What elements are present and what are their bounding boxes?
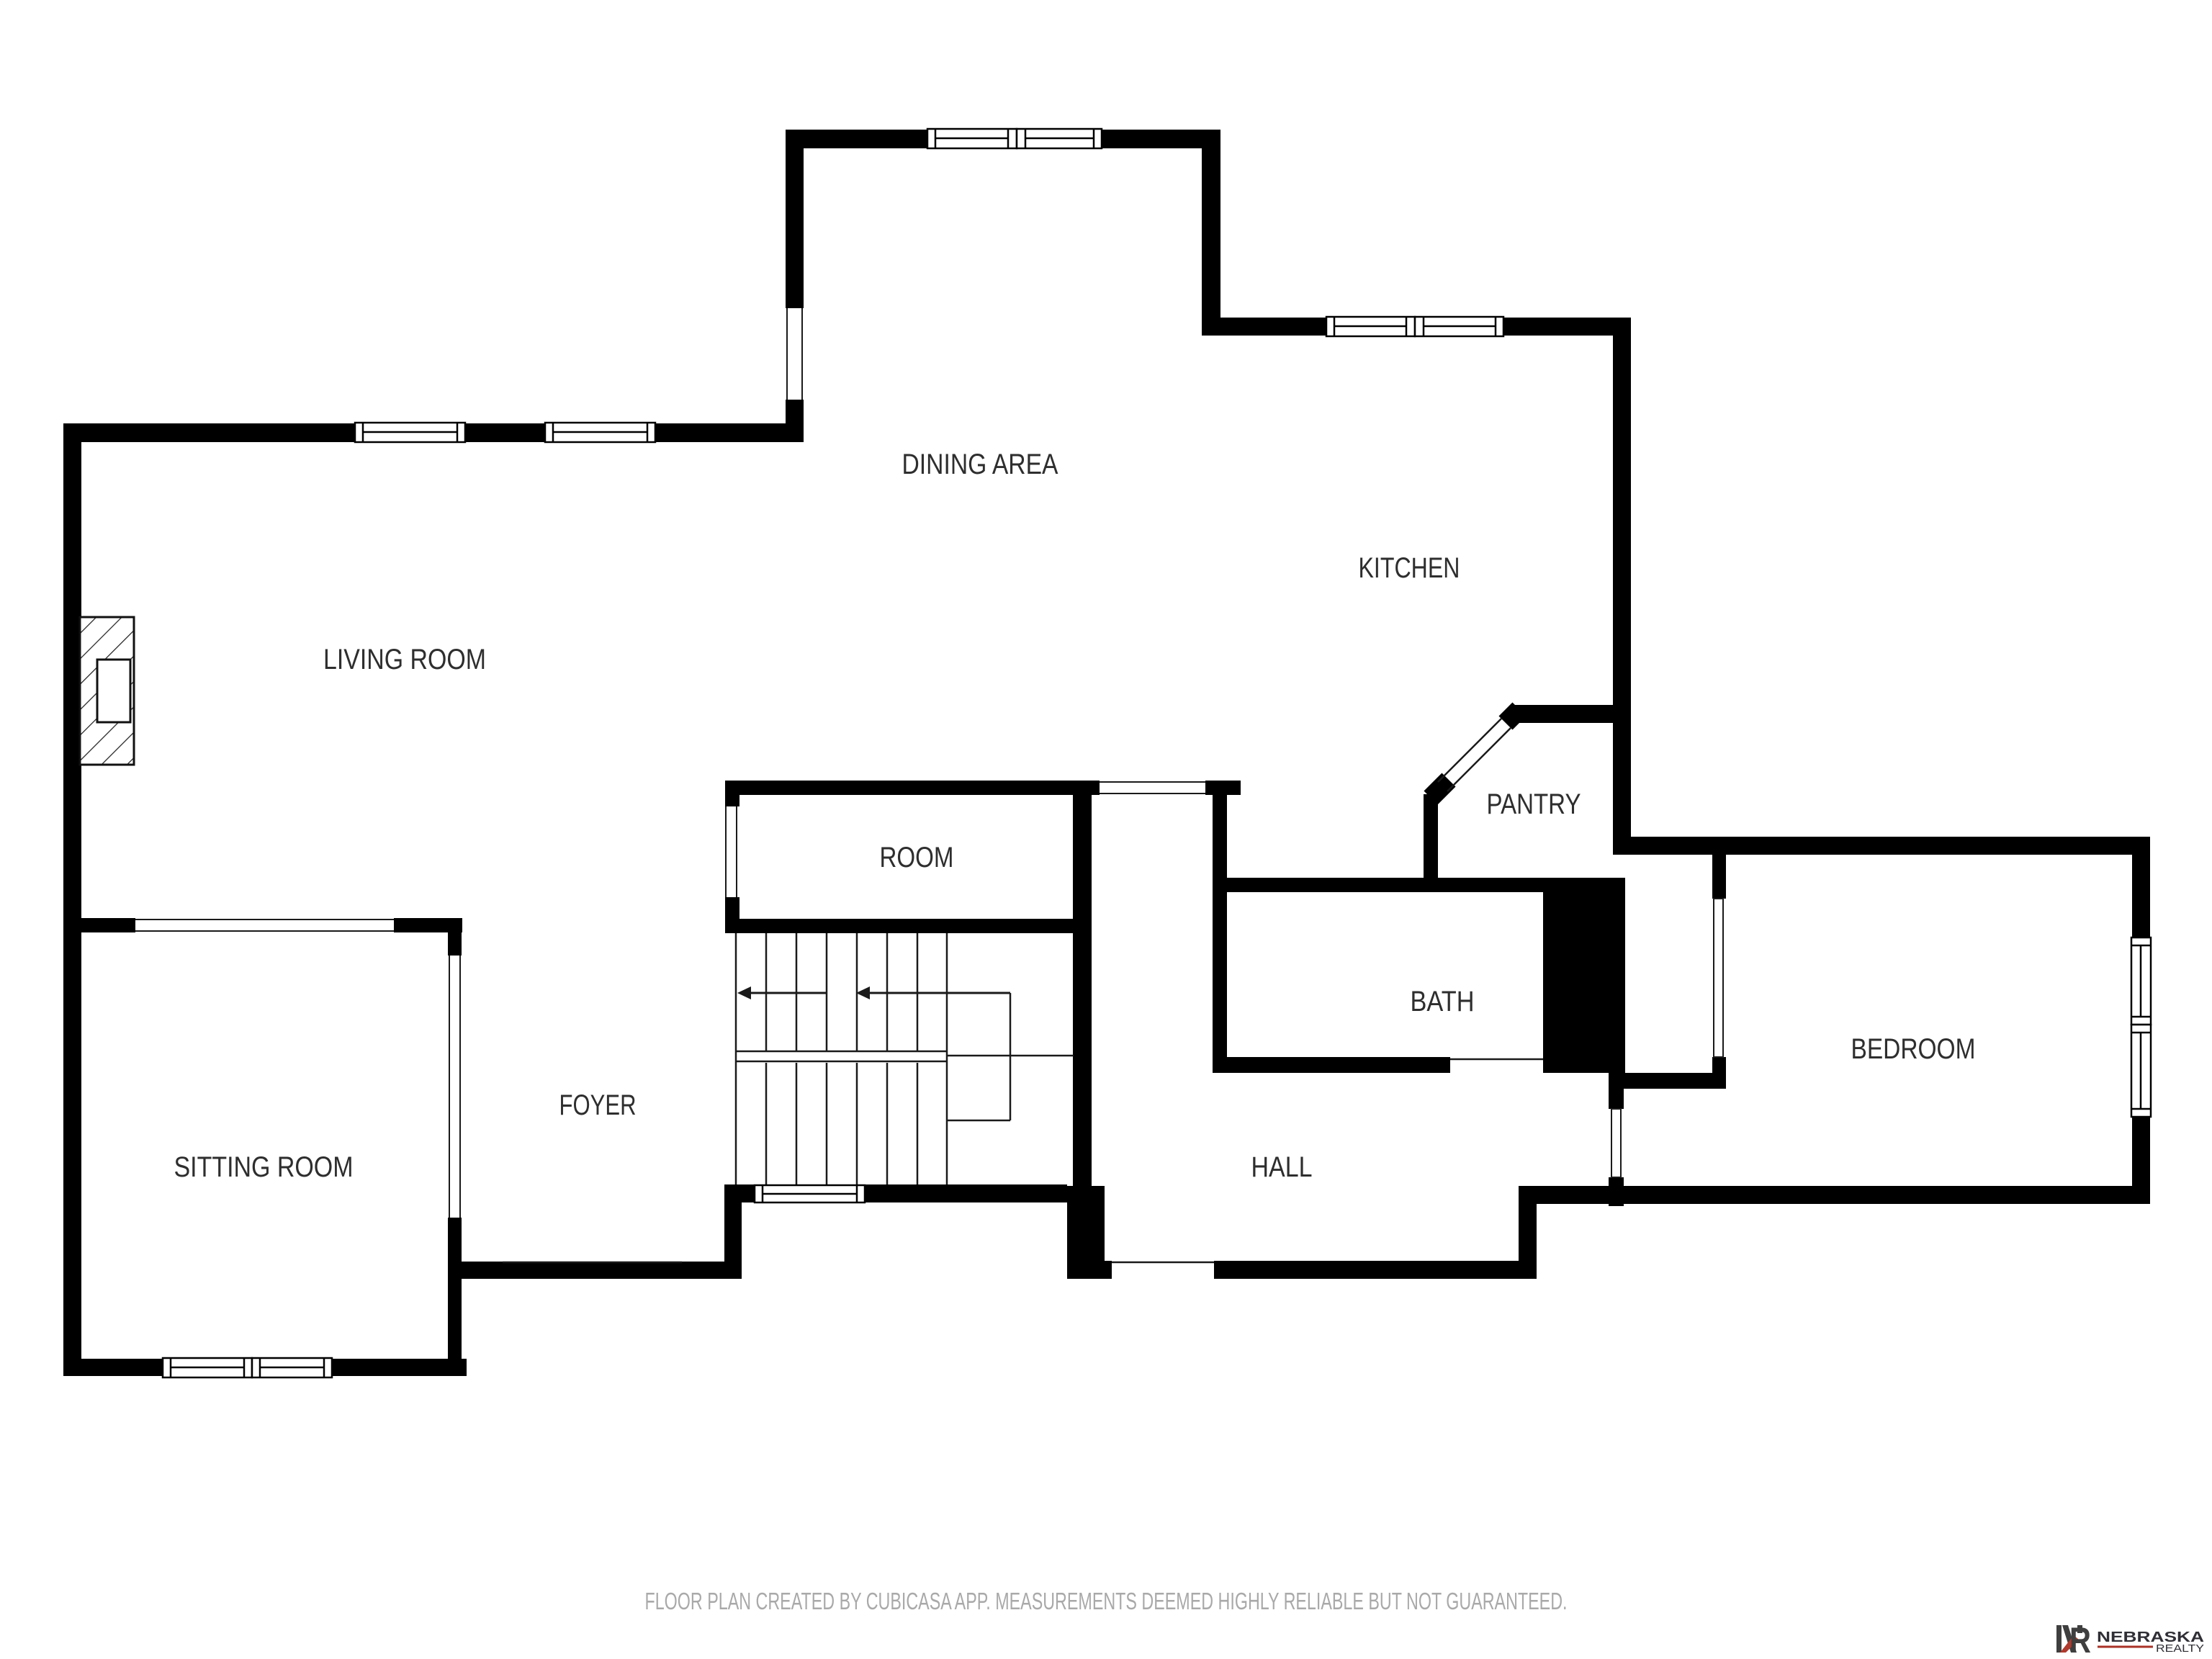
svg-text:BATH: BATH <box>1411 986 1475 1017</box>
svg-text:FOYER: FOYER <box>559 1089 637 1121</box>
svg-text:ROOM: ROOM <box>880 842 954 873</box>
svg-text:REALTY: REALTY <box>2156 1642 2204 1655</box>
svg-text:R: R <box>2069 1620 2091 1659</box>
svg-text:SITTING ROOM: SITTING ROOM <box>174 1151 354 1183</box>
svg-text:LIVING ROOM: LIVING ROOM <box>323 644 486 675</box>
svg-text:BEDROOM: BEDROOM <box>1851 1033 1976 1065</box>
svg-text:FLOOR PLAN CREATED BY CUBICASA: FLOOR PLAN CREATED BY CUBICASA APP. MEAS… <box>645 1588 1568 1614</box>
svg-text:HALL: HALL <box>1251 1151 1313 1183</box>
svg-text:DINING AREA: DINING AREA <box>902 449 1058 480</box>
svg-text:KITCHEN: KITCHEN <box>1359 552 1460 584</box>
svg-text:PANTRY: PANTRY <box>1487 788 1581 820</box>
